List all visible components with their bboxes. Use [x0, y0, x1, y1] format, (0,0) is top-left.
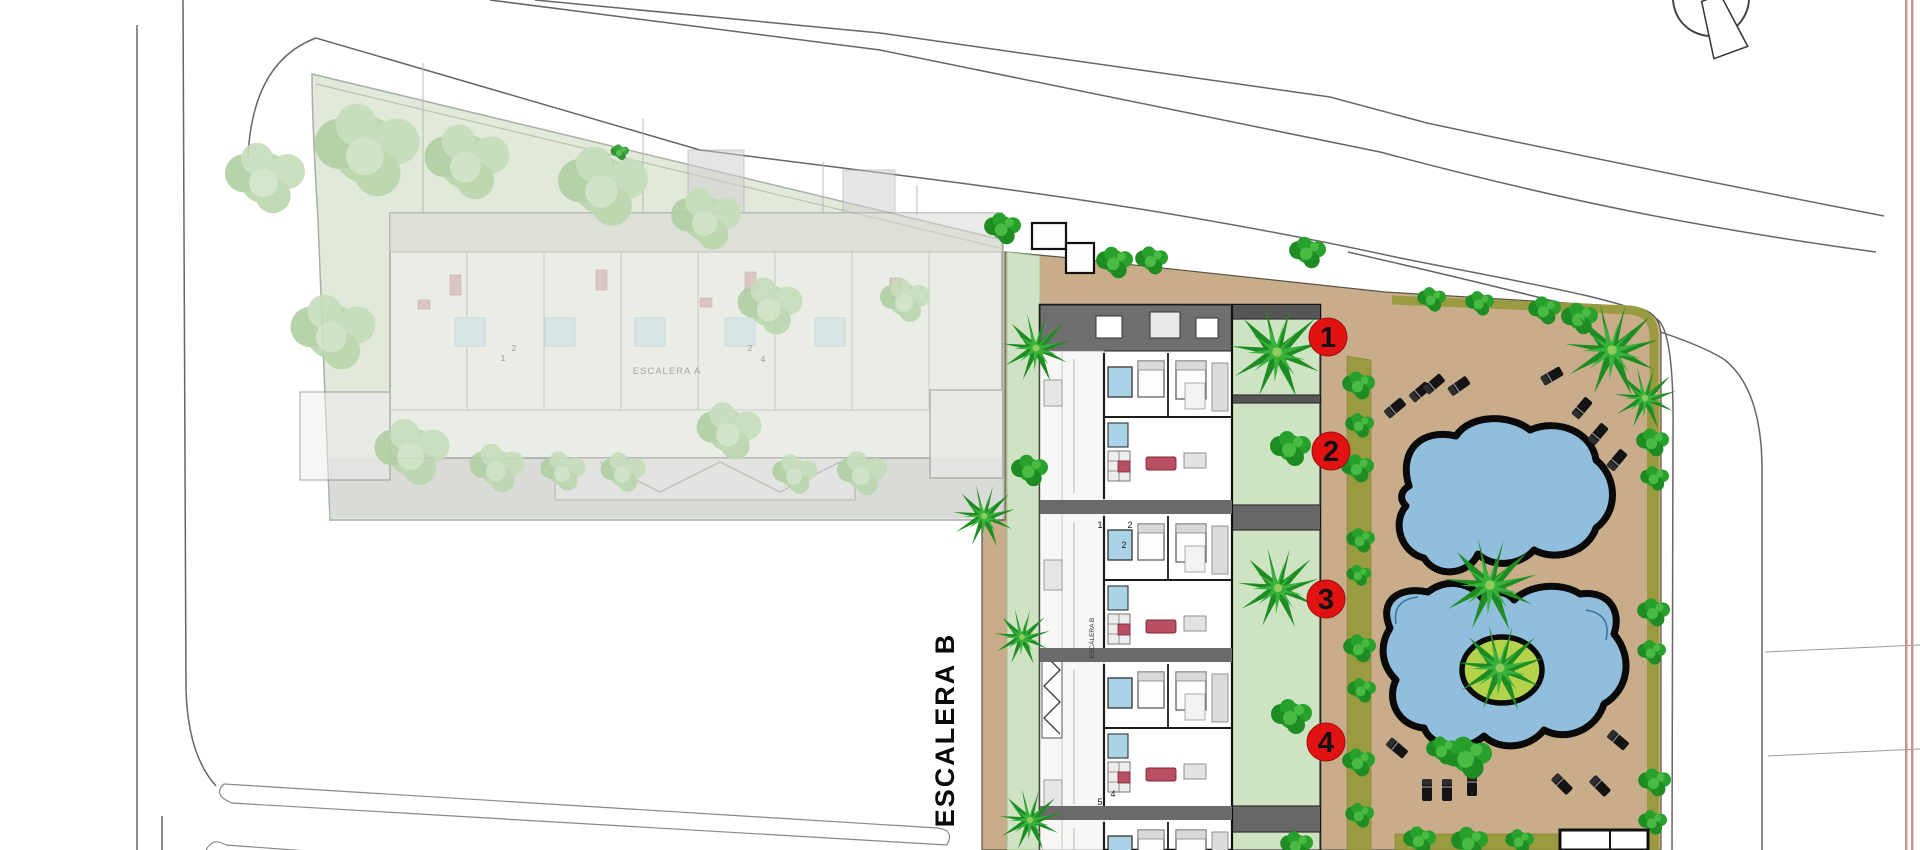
building-b-core: [1040, 351, 1104, 850]
building-b: 1 2 2 4 5 ESCALERA B: [1040, 305, 1320, 850]
unit-number: 4: [761, 354, 766, 364]
road-median: [220, 784, 950, 845]
site-plan-svg: ESCALERA A 1 2 2 4: [0, 0, 1920, 850]
road-line: [1768, 749, 1920, 756]
unit-marker-4[interactable]: 4: [1307, 723, 1345, 761]
unit-marker-number: 3: [1318, 584, 1334, 616]
unit-marker-3[interactable]: 3: [1307, 580, 1345, 618]
unit-number: 4: [1110, 789, 1115, 799]
unit-marker-2[interactable]: 2: [1312, 432, 1350, 470]
site-plan: ESCALERA A 1 2 2 4: [0, 0, 1920, 850]
road-line: [1765, 645, 1920, 652]
unit-number: 1: [1097, 520, 1102, 530]
unit-marker-number: 1: [1320, 322, 1336, 354]
unit-number: 2: [1127, 520, 1132, 530]
building-b-label: ESCALERA B: [930, 633, 960, 828]
road-line: [183, 0, 216, 786]
pool-upper: [1399, 419, 1612, 572]
entrance-step: [1066, 243, 1094, 273]
unit-number: 2: [1121, 540, 1126, 550]
unit-marker-number: 2: [1323, 436, 1339, 468]
north-arrow-icon: [1661, 0, 1767, 65]
unit-number: 2: [748, 343, 753, 353]
building-corner: [1560, 830, 1648, 850]
entrance-step: [1032, 223, 1066, 249]
unit-number: 1: [501, 353, 506, 363]
unit-number: 5: [1097, 797, 1102, 807]
unit-marker-1[interactable]: 1: [1309, 318, 1347, 356]
site-boundary-line: [1905, 0, 1914, 850]
unit-number: 2: [512, 343, 517, 353]
building-a-label: ESCALERA A: [633, 366, 702, 377]
building-b-inner-label: ESCALERA B: [1089, 618, 1096, 658]
road-median: [206, 842, 596, 850]
unit-marker-number: 4: [1318, 727, 1334, 759]
